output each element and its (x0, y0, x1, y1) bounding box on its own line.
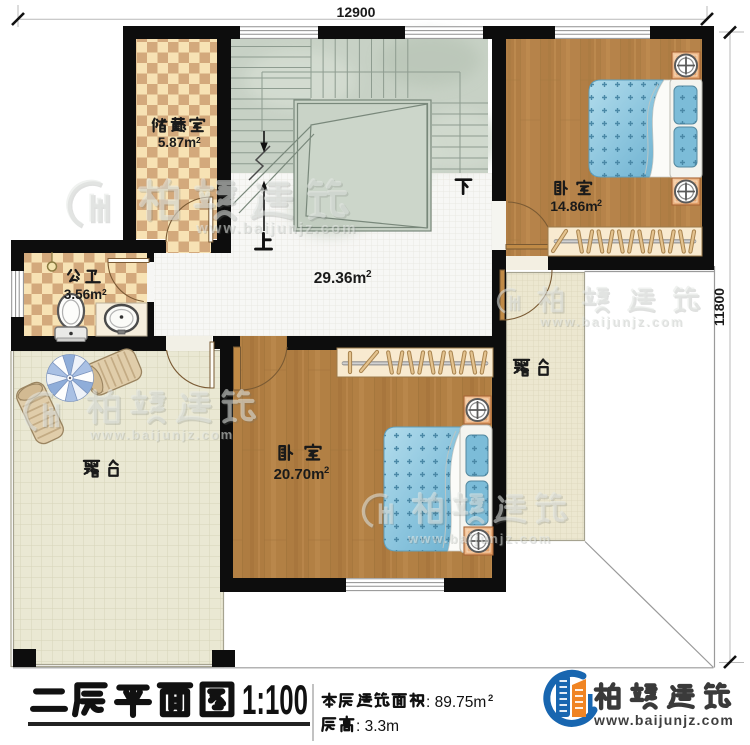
svg-text:2: 2 (324, 465, 329, 476)
svg-text:14.86m: 14.86m (550, 198, 597, 214)
svg-text:2: 2 (488, 693, 493, 704)
svg-text:5.87m: 5.87m (158, 135, 196, 150)
svg-text:www.baijunjz.com: www.baijunjz.com (539, 314, 684, 329)
svg-text:2: 2 (102, 287, 107, 297)
svg-text:www.baijunjz.com: www.baijunjz.com (89, 427, 234, 442)
svg-text:2: 2 (366, 269, 372, 280)
svg-text:www.baijunjz.com: www.baijunjz.com (407, 531, 552, 546)
svg-text:www.baijunjz.com: www.baijunjz.com (195, 220, 357, 237)
svg-text:20.70m: 20.70m (274, 466, 325, 483)
svg-text:2: 2 (597, 198, 602, 208)
svg-text:www.baijunjz.com: www.baijunjz.com (593, 712, 734, 728)
svg-text:11800: 11800 (711, 288, 727, 326)
svg-text:: 89.75m: : 89.75m (426, 694, 486, 711)
svg-text:2: 2 (196, 135, 201, 145)
svg-text:: 3.3m: : 3.3m (356, 718, 399, 735)
svg-text:12900: 12900 (337, 4, 376, 20)
svg-text:1:100: 1:100 (242, 676, 308, 723)
svg-text:29.36m: 29.36m (314, 270, 367, 287)
svg-text:3.56m: 3.56m (64, 287, 102, 302)
